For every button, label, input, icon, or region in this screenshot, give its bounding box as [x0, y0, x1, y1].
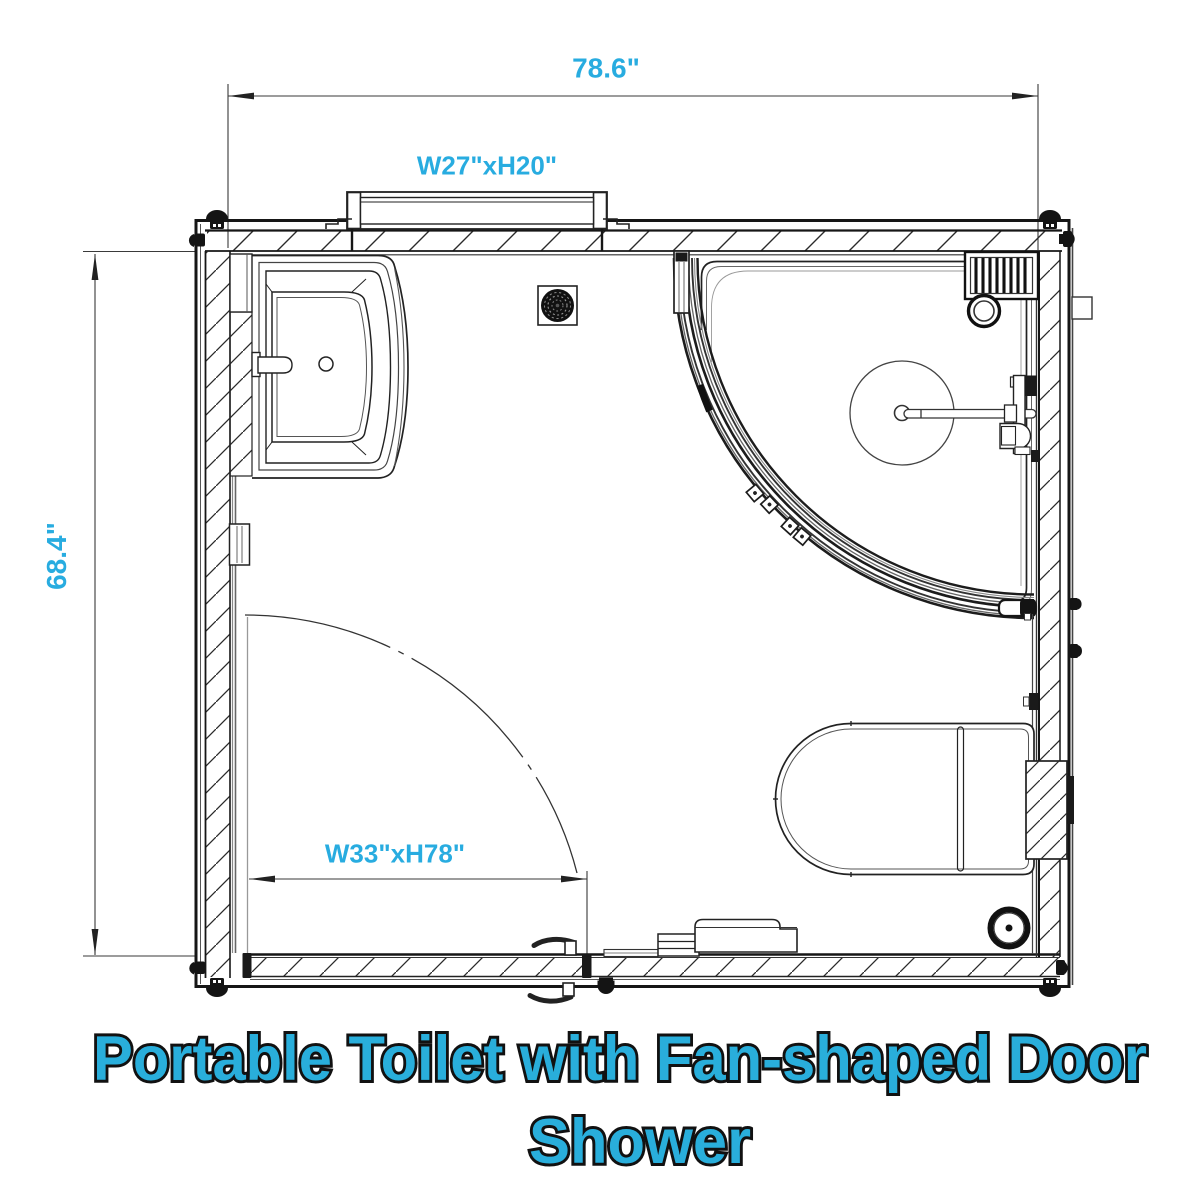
svg-text:78.6": 78.6": [572, 53, 640, 84]
svg-text:W27"xH20": W27"xH20": [417, 151, 557, 181]
svg-text:Portable Toilet with Fan-shape: Portable Toilet with Fan-shaped Door: [93, 1024, 1147, 1094]
svg-text:W33"xH78": W33"xH78": [325, 839, 465, 869]
svg-text:Shower: Shower: [529, 1107, 751, 1177]
svg-text:68.4": 68.4": [41, 522, 72, 590]
